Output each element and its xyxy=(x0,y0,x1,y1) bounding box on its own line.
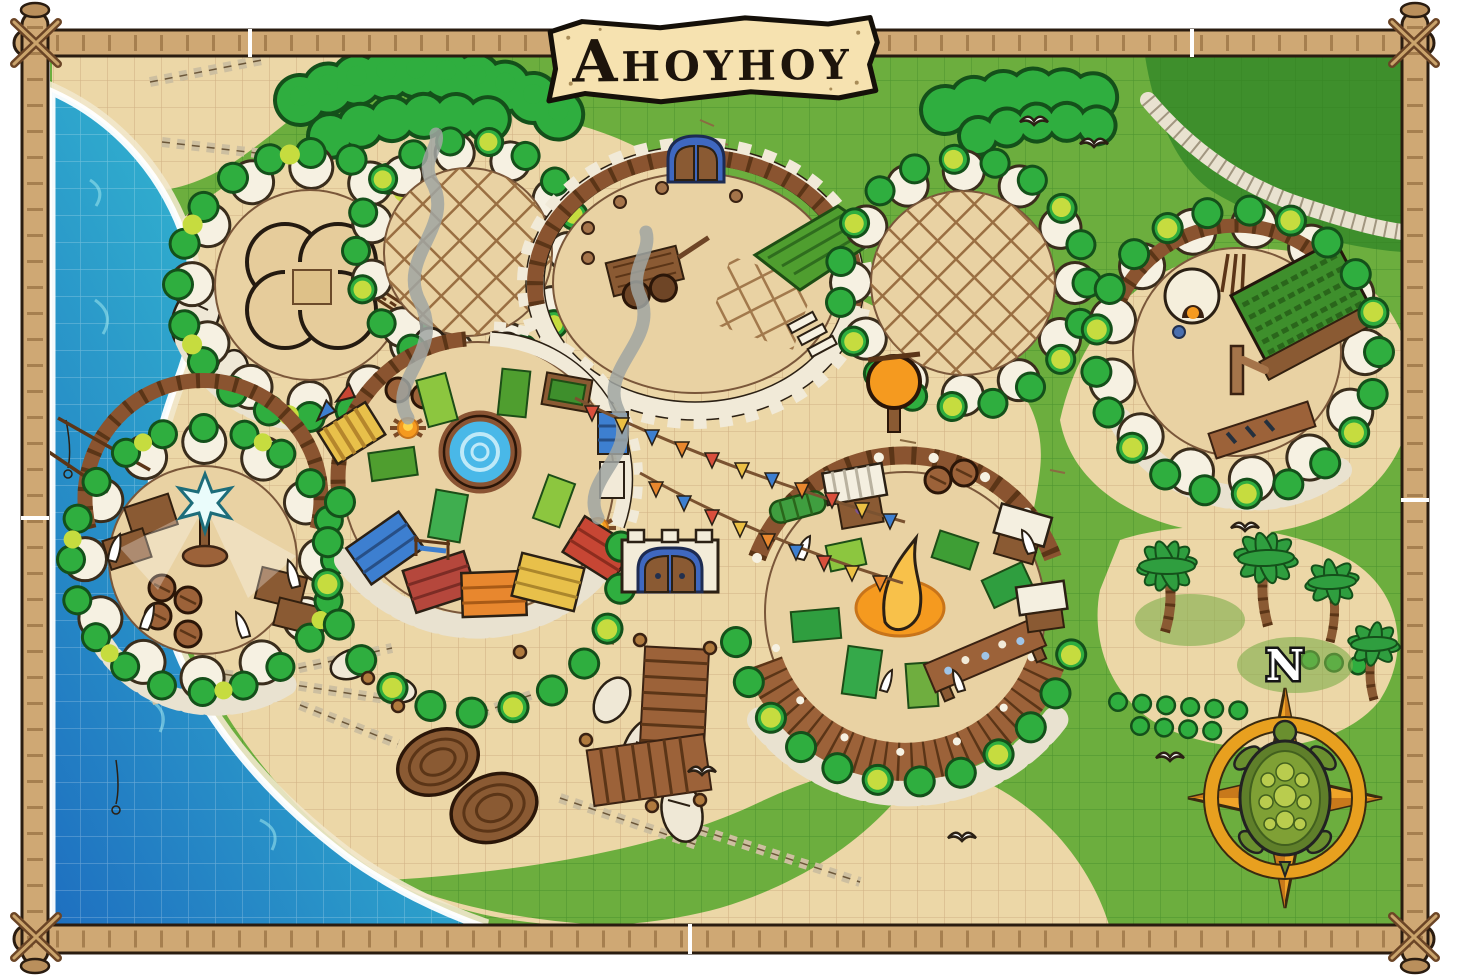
title-banner: AHOYHOY xyxy=(548,16,878,102)
garden-compound xyxy=(1095,210,1379,499)
trellis-roof xyxy=(871,191,1055,375)
dome-hut xyxy=(1165,269,1219,323)
compass-north-label: N xyxy=(1266,641,1304,690)
inner-court xyxy=(293,270,331,304)
watering-can xyxy=(1173,326,1185,338)
boardwalk-compound xyxy=(736,455,1074,793)
ahoyhoy-map: N xyxy=(0,0,1459,978)
bathing-pool xyxy=(444,416,516,488)
gatehouse xyxy=(622,530,718,592)
forest-cluster-east xyxy=(945,92,1122,136)
map-canvas: N xyxy=(0,0,1459,978)
arena-gate xyxy=(668,136,724,182)
